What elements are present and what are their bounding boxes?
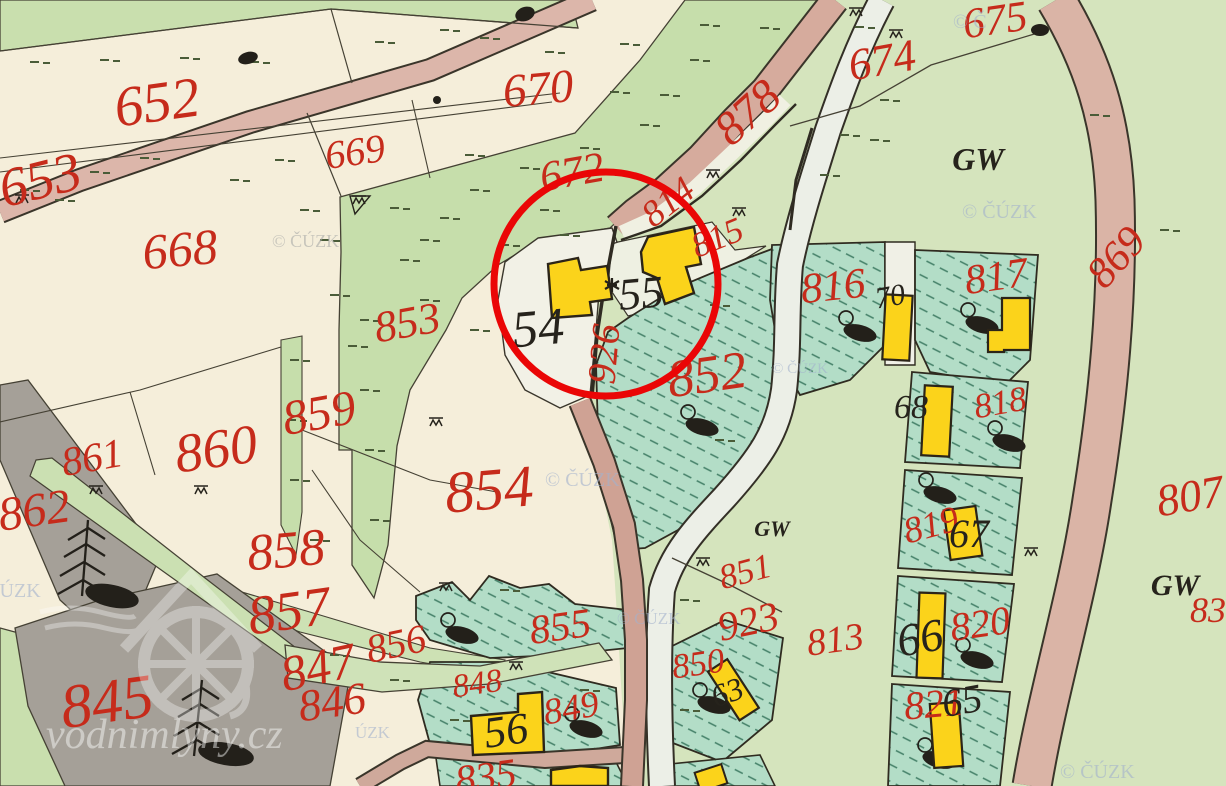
svg-text:© ČÚZK: © ČÚZK [0,578,41,602]
svg-text:65: 65 [938,675,985,726]
svg-text:© ČÚZK: © ČÚZK [1060,759,1135,783]
svg-text:GW: GW [1151,569,1202,602]
svg-text:813: 813 [804,615,866,665]
svg-text:855: 855 [526,599,593,653]
svg-text:926: 926 [578,322,628,386]
svg-text:848: 848 [450,663,505,706]
svg-text:816: 816 [799,260,869,314]
svg-text:669: 669 [322,125,388,178]
svg-text:vodnimlyny.cz: vodnimlyny.cz [46,712,283,758]
svg-text:857: 857 [244,574,337,646]
svg-text:© ČÚZK: © ČÚZK [772,360,828,377]
svg-text:56: 56 [481,703,531,758]
svg-text:817: 817 [962,250,1033,305]
svg-text:68: 68 [894,389,928,426]
svg-text:© ČÚZK: © ČÚZK [272,230,339,251]
svg-text:© ČÚZK: © ČÚZK [962,199,1037,223]
svg-text:70: 70 [872,278,907,316]
svg-text:670: 670 [501,60,576,118]
svg-text:55: 55 [616,266,665,320]
svg-text:860: 860 [171,413,261,485]
svg-text:© Č: © Č [953,9,987,33]
svg-text:854: 854 [442,452,536,525]
svg-text:© ČÚZK: © ČÚZK [545,467,620,491]
svg-text:862: 862 [0,479,73,542]
svg-text:66: 66 [893,608,947,666]
svg-text:820: 820 [947,597,1013,650]
svg-text:67: 67 [949,511,991,556]
svg-text:© ČÚZK: © ČÚZK [617,609,681,628]
svg-text:652: 652 [110,65,203,139]
svg-text:GW: GW [754,516,791,541]
svg-text:GW: GW [952,141,1006,177]
svg-text:ÚZK: ÚZK [355,723,391,742]
svg-text:668: 668 [140,218,220,280]
svg-text:858: 858 [245,519,328,583]
